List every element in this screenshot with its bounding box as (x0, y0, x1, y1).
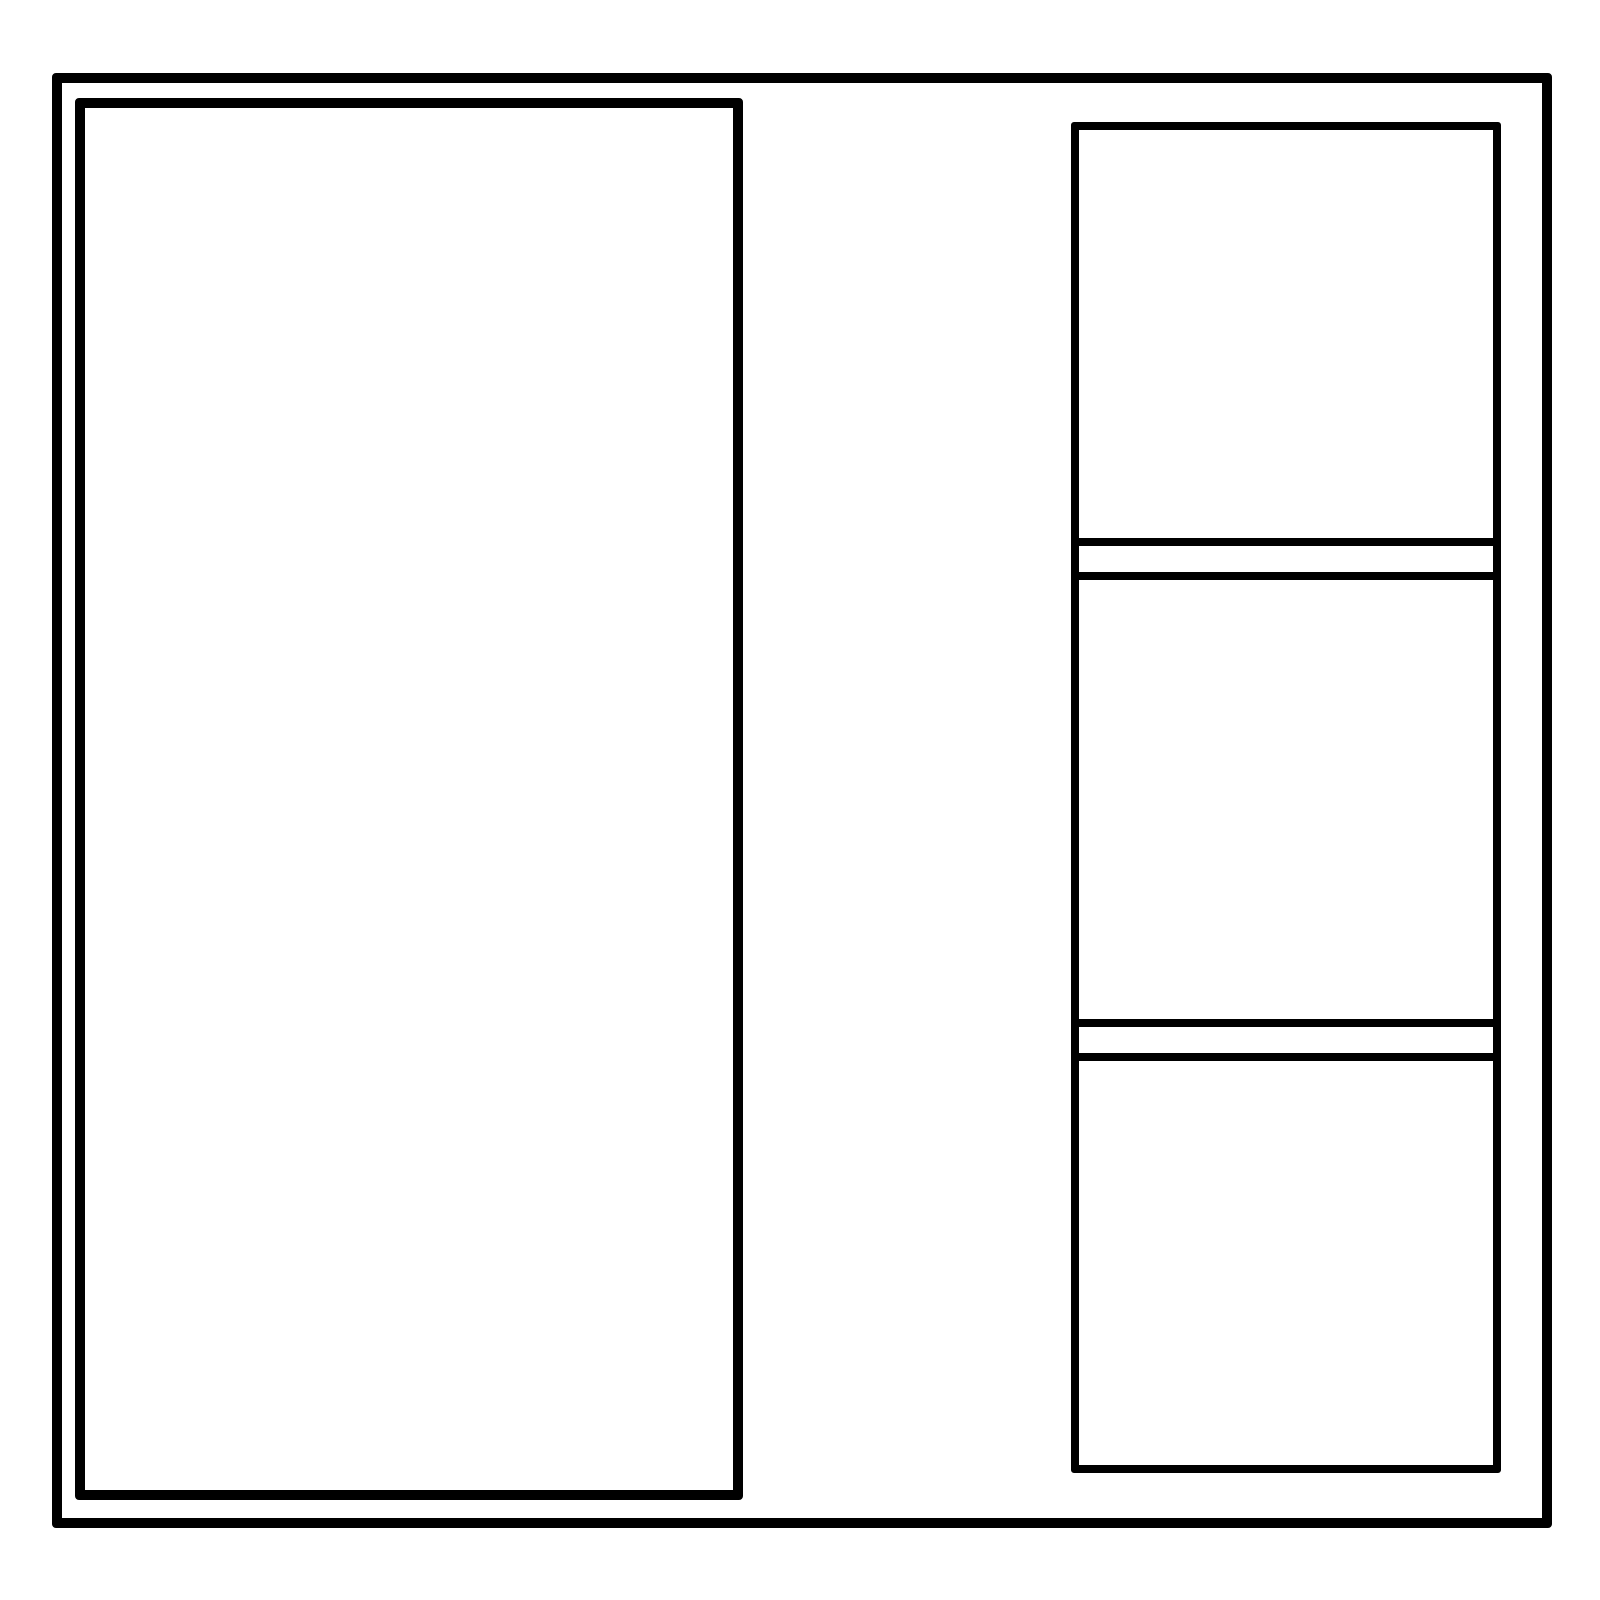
right-column (1071, 122, 1501, 1473)
right-section-bottom (1079, 1061, 1493, 1465)
left-panel (75, 98, 743, 1500)
separator-band-2 (1079, 1019, 1493, 1061)
canvas (0, 0, 1600, 1600)
right-section-middle (1079, 580, 1493, 1019)
right-section-top (1079, 130, 1493, 538)
separator-band-1 (1079, 538, 1493, 580)
